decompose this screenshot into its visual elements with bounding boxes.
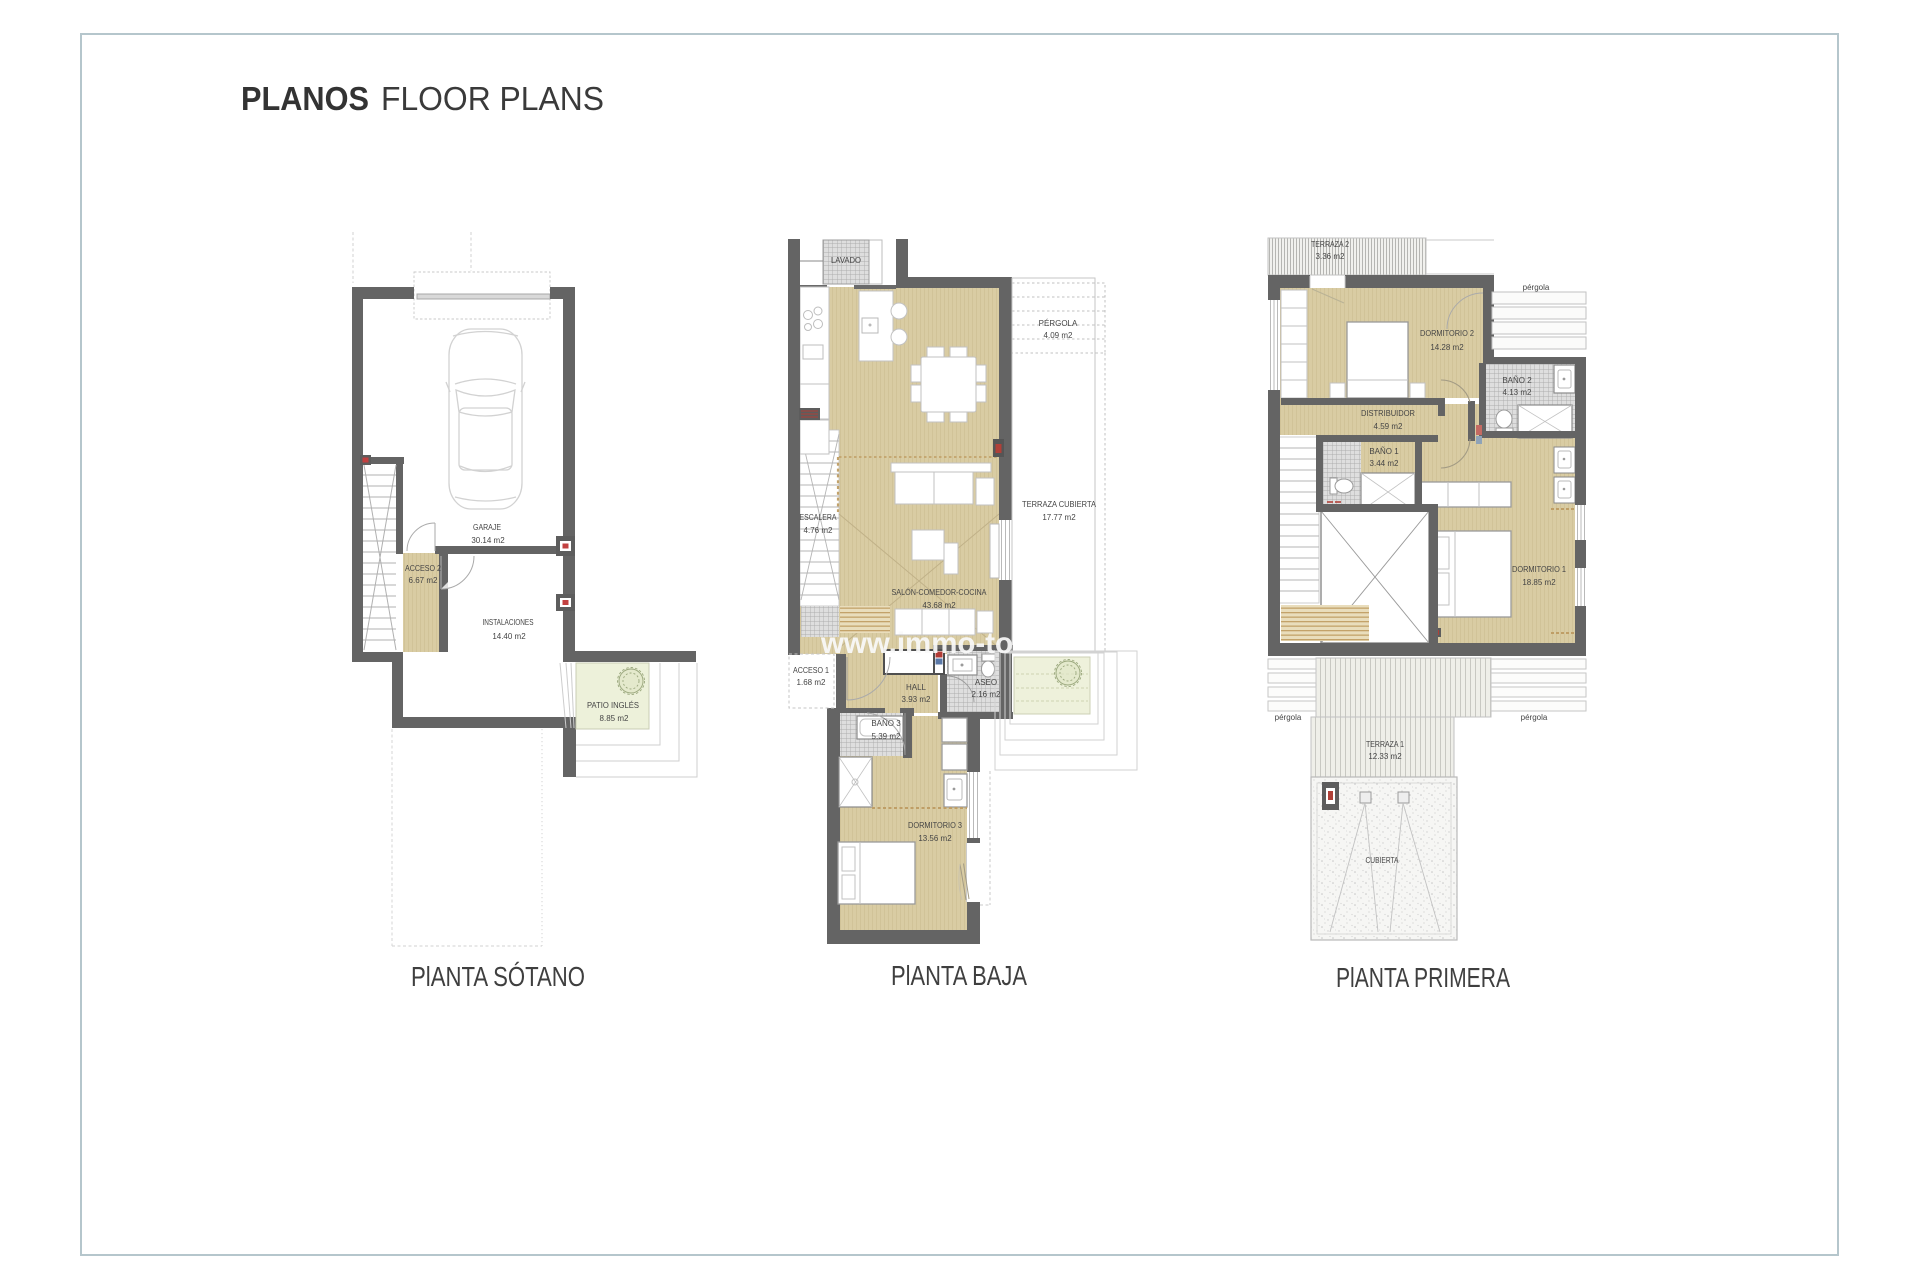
svg-text:pérgola: pérgola [1523,283,1550,292]
svg-text:INSTALACIONES: INSTALACIONES [483,617,534,627]
svg-text:DORMITORIO 2: DORMITORIO 2 [1420,328,1474,338]
svg-text:BAÑO 2: BAÑO 2 [1502,376,1532,385]
svg-text:PlANTA BAJA: PlANTA BAJA [891,960,1027,991]
svg-text:TERRAZA 2: TERRAZA 2 [1311,240,1349,249]
svg-text:TERRAZA 1: TERRAZA 1 [1366,740,1404,749]
svg-text:ESCALERA: ESCALERA [800,513,838,522]
svg-text:43.68 m2: 43.68 m2 [922,601,956,610]
svg-text:PlANTA PRIMERA: PlANTA PRIMERA [1336,962,1510,993]
svg-text:6.67 m2: 6.67 m2 [409,576,438,585]
svg-text:BAÑO 1: BAÑO 1 [1369,447,1399,456]
svg-text:14.28 m2: 14.28 m2 [1430,343,1464,352]
svg-text:SALÓN-COMEDOR-COCINA: SALÓN-COMEDOR-COCINA [892,587,987,597]
svg-text:13.56 m2: 13.56 m2 [918,834,952,843]
svg-text:BAÑO 3: BAÑO 3 [871,719,901,728]
svg-text:ACCESO 1: ACCESO 1 [793,666,829,675]
svg-text:PÉRGOLA: PÉRGOLA [1039,319,1078,328]
svg-text:HALL: HALL [906,683,927,692]
svg-text:ASEO: ASEO [975,678,997,687]
svg-text:12.33 m2: 12.33 m2 [1368,752,1402,761]
svg-text:TERRAZA CUBIERTA: TERRAZA CUBIERTA [1022,499,1096,509]
svg-text:4.76 m2: 4.76 m2 [804,526,833,535]
svg-text:2.16 m2: 2.16 m2 [972,690,1001,699]
svg-text:3.44 m2: 3.44 m2 [1370,459,1399,468]
svg-text:3.93 m2: 3.93 m2 [902,695,931,704]
svg-text:4.13 m2: 4.13 m2 [1503,388,1532,397]
svg-text:1.68 m2: 1.68 m2 [797,678,826,687]
svg-text:pérgola: pérgola [1275,713,1302,722]
svg-text:18.85 m2: 18.85 m2 [1522,578,1556,587]
svg-text:DISTRIBUIDOR: DISTRIBUIDOR [1361,409,1415,418]
svg-text:DORMITORIO 3: DORMITORIO 3 [908,820,962,830]
svg-text:pérgola: pérgola [1521,713,1548,722]
svg-text:LAVADO: LAVADO [831,256,861,265]
svg-text:PLANOS: PLANOS [241,80,369,117]
svg-text:CUBIERTA: CUBIERTA [1366,856,1400,865]
svg-text:5.39 m2: 5.39 m2 [872,732,901,741]
svg-text:GARAJE: GARAJE [473,522,501,532]
svg-text:PATIO INGLÉS: PATIO INGLÉS [587,701,639,710]
svg-text:www.immo-to: www.immo-to [820,627,1013,660]
svg-text:8.85 m2: 8.85 m2 [600,714,629,723]
svg-text:17.77 m2: 17.77 m2 [1042,513,1076,522]
svg-text:30.14 m2: 30.14 m2 [471,536,505,545]
svg-text:DORMITORIO 1: DORMITORIO 1 [1512,564,1566,574]
svg-text:14.40 m2: 14.40 m2 [492,632,526,641]
svg-text:4.09 m2: 4.09 m2 [1044,331,1073,340]
svg-text:4.59 m2: 4.59 m2 [1374,422,1403,431]
svg-text:PlANTA SÓTANO: PlANTA SÓTANO [411,961,585,992]
svg-text:3.36 m2: 3.36 m2 [1316,252,1345,261]
svg-text:FLOOR PLANS: FLOOR PLANS [381,80,604,117]
svg-text:ACCESO 2: ACCESO 2 [405,564,441,573]
